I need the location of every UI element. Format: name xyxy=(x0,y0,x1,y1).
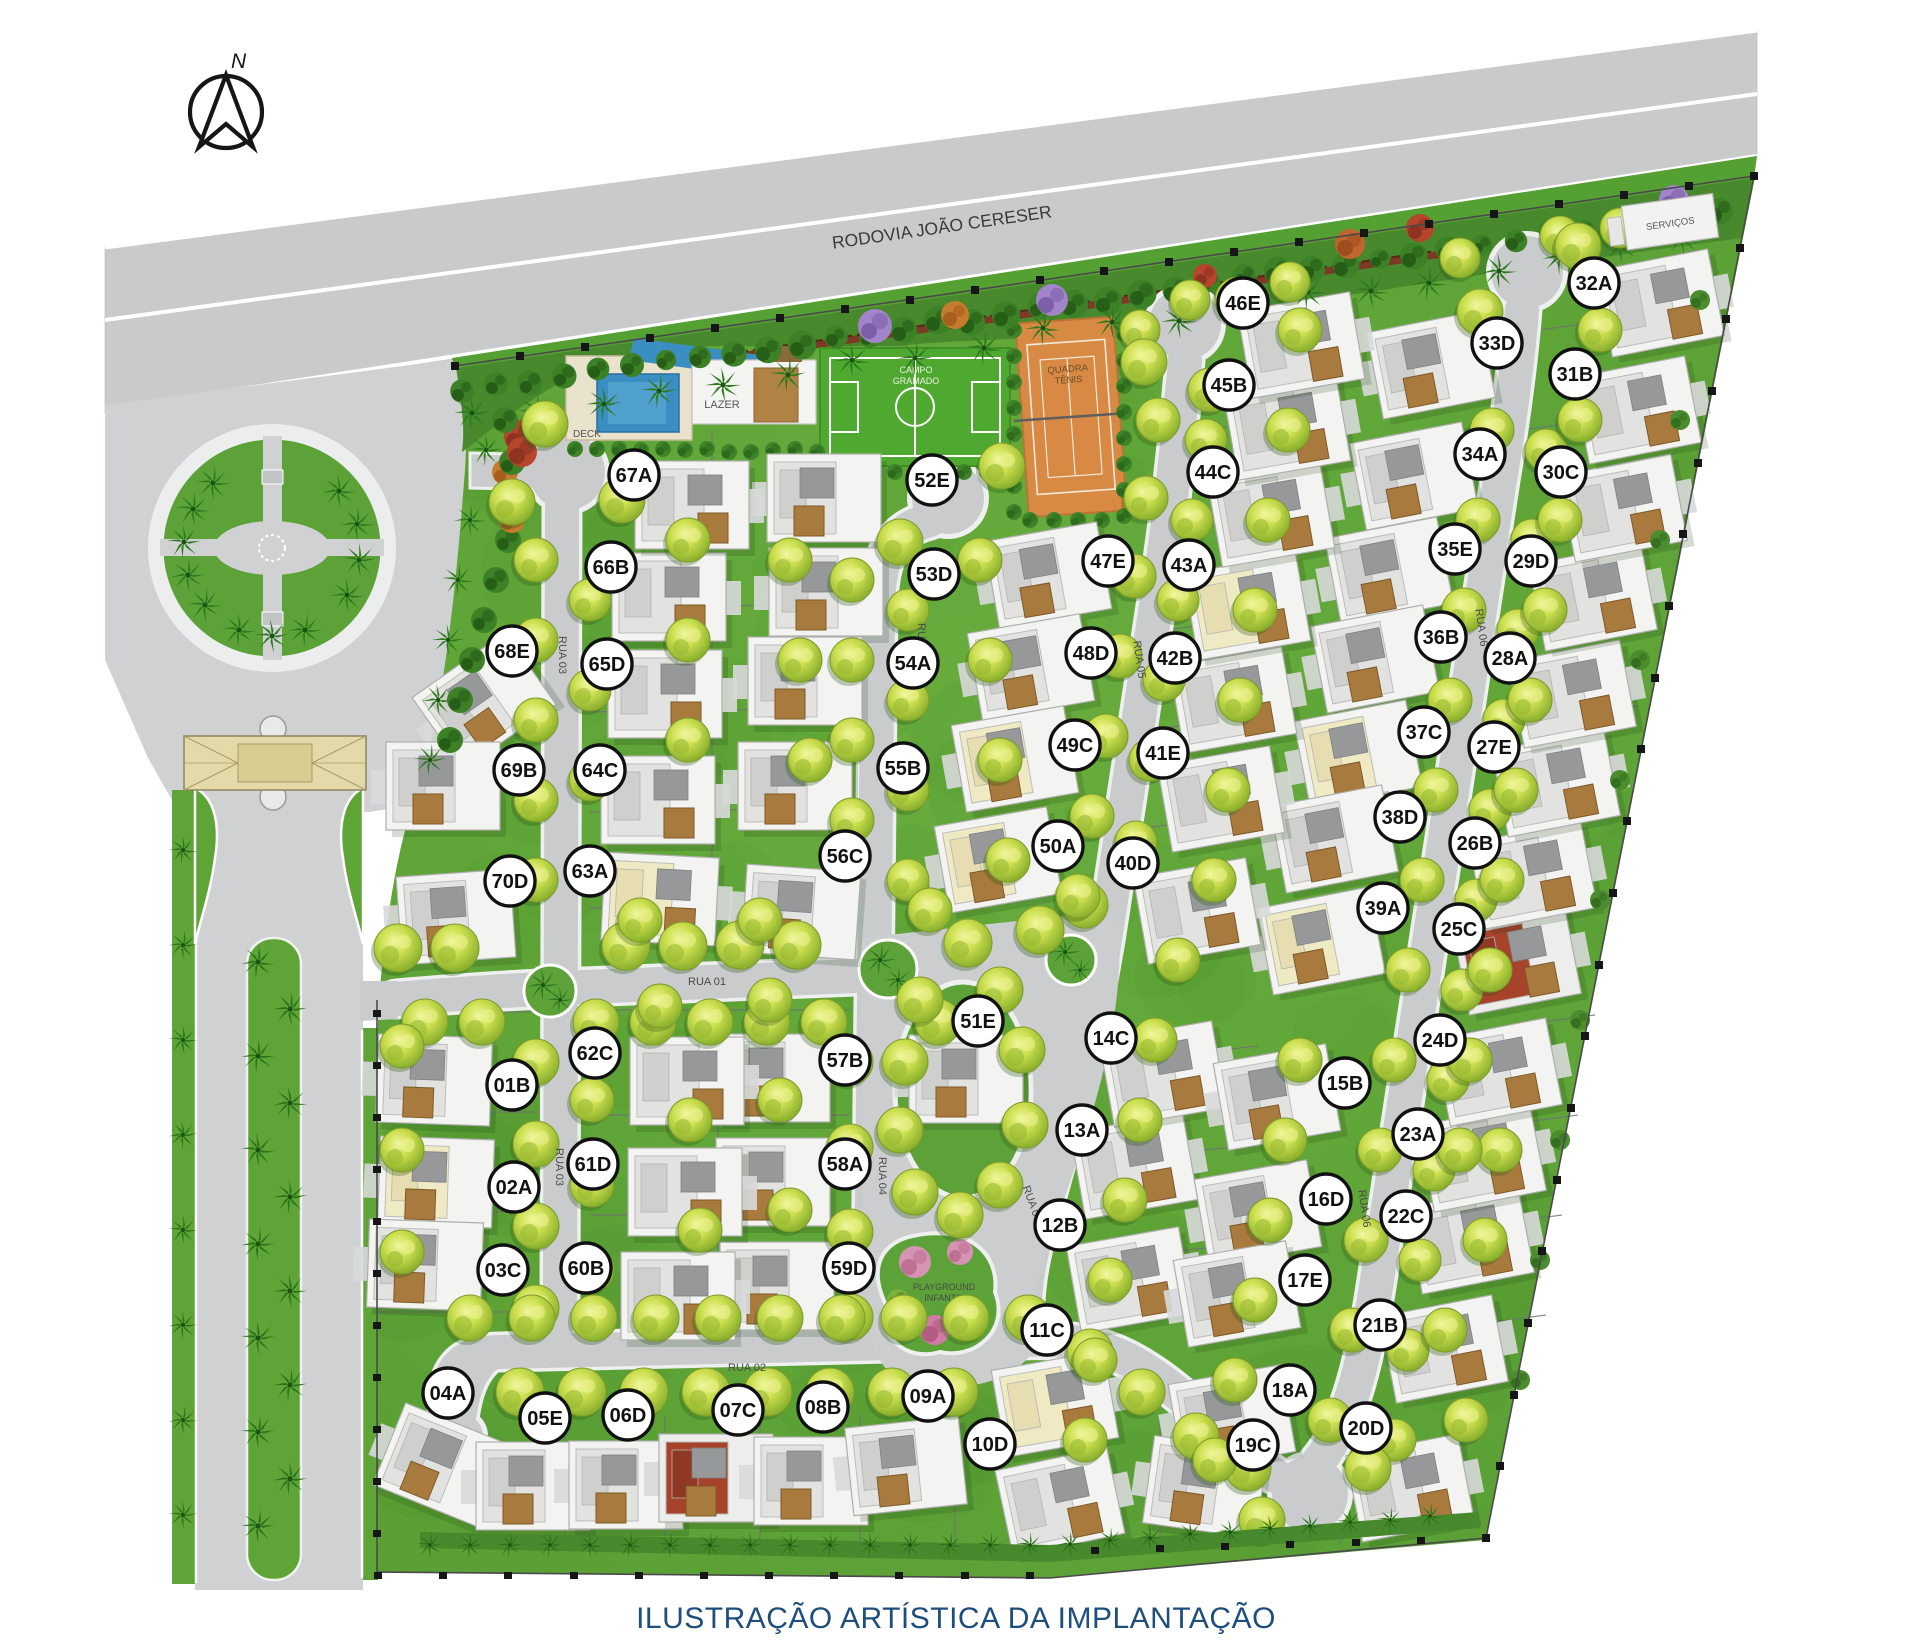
svg-text:38D: 38D xyxy=(1382,807,1419,829)
svg-text:61D: 61D xyxy=(575,1154,612,1176)
svg-text:06D: 06D xyxy=(610,1405,647,1427)
svg-text:45B: 45B xyxy=(1211,375,1248,397)
svg-text:53D: 53D xyxy=(916,564,953,586)
svg-text:24D: 24D xyxy=(1422,1030,1459,1052)
svg-text:37C: 37C xyxy=(1406,722,1443,744)
svg-text:14C: 14C xyxy=(1093,1028,1130,1050)
svg-text:02A: 02A xyxy=(496,1177,533,1199)
svg-text:43A: 43A xyxy=(1171,555,1208,577)
svg-text:LAZER: LAZER xyxy=(704,399,740,411)
svg-text:52E: 52E xyxy=(914,470,950,492)
svg-text:04A: 04A xyxy=(430,1383,467,1405)
svg-text:62C: 62C xyxy=(577,1043,614,1065)
svg-text:67A: 67A xyxy=(616,465,653,487)
svg-text:28A: 28A xyxy=(1492,648,1529,670)
svg-text:41E: 41E xyxy=(1145,743,1181,765)
svg-text:51E: 51E xyxy=(960,1011,996,1033)
svg-text:25C: 25C xyxy=(1441,919,1478,941)
svg-text:TÊNIS: TÊNIS xyxy=(1054,374,1083,387)
svg-text:29D: 29D xyxy=(1513,551,1550,573)
svg-text:30C: 30C xyxy=(1543,462,1580,484)
svg-text:RUA 01: RUA 01 xyxy=(688,976,726,988)
svg-text:ILUSTRAÇÃO ARTÍSTICA DA IMPLAN: ILUSTRAÇÃO ARTÍSTICA DA IMPLANTAÇÃO xyxy=(636,1601,1276,1635)
svg-text:13A: 13A xyxy=(1064,1120,1101,1142)
svg-text:70D: 70D xyxy=(492,871,529,893)
svg-text:RUA 04: RUA 04 xyxy=(876,1157,888,1195)
svg-text:09A: 09A xyxy=(910,1386,947,1408)
svg-text:49C: 49C xyxy=(1057,735,1094,757)
svg-text:PLAYGROUND: PLAYGROUND xyxy=(913,1282,976,1292)
svg-text:33D: 33D xyxy=(1479,333,1516,355)
svg-text:RUA 02: RUA 02 xyxy=(728,1362,766,1374)
svg-text:69B: 69B xyxy=(501,760,538,782)
svg-text:36B: 36B xyxy=(1423,627,1460,649)
svg-text:27E: 27E xyxy=(1476,737,1512,759)
svg-text:23A: 23A xyxy=(1400,1124,1437,1146)
svg-text:03C: 03C xyxy=(485,1260,522,1282)
svg-text:64C: 64C xyxy=(582,760,619,782)
svg-text:26B: 26B xyxy=(1457,833,1494,855)
svg-text:07C: 07C xyxy=(720,1400,757,1422)
svg-text:56C: 56C xyxy=(827,846,864,868)
svg-text:21B: 21B xyxy=(1362,1315,1399,1337)
svg-text:GRAMADO: GRAMADO xyxy=(893,376,940,386)
svg-text:31B: 31B xyxy=(1557,364,1594,386)
svg-text:39A: 39A xyxy=(1365,898,1402,920)
svg-text:10D: 10D xyxy=(972,1434,1009,1456)
svg-text:12B: 12B xyxy=(1042,1215,1079,1237)
svg-text:40D: 40D xyxy=(1115,853,1152,875)
svg-text:01B: 01B xyxy=(494,1075,531,1097)
svg-text:18A: 18A xyxy=(1272,1380,1309,1402)
svg-text:17E: 17E xyxy=(1287,1270,1323,1292)
svg-text:42B: 42B xyxy=(1157,648,1194,670)
svg-text:05E: 05E xyxy=(527,1408,563,1430)
svg-text:57B: 57B xyxy=(827,1050,864,1072)
svg-text:66B: 66B xyxy=(593,557,630,579)
svg-text:11C: 11C xyxy=(1029,1320,1065,1342)
svg-text:46E: 46E xyxy=(1225,293,1261,315)
svg-text:19C: 19C xyxy=(1235,1435,1272,1457)
svg-text:60B: 60B xyxy=(568,1258,605,1280)
svg-text:15B: 15B xyxy=(1327,1073,1364,1095)
svg-text:32A: 32A xyxy=(1576,273,1613,295)
svg-text:N: N xyxy=(231,50,247,73)
svg-text:58A: 58A xyxy=(827,1154,864,1176)
svg-text:RUA 03: RUA 03 xyxy=(553,1148,565,1186)
svg-text:35E: 35E xyxy=(1437,539,1473,561)
svg-text:08B: 08B xyxy=(805,1397,842,1419)
svg-text:22C: 22C xyxy=(1388,1206,1425,1228)
svg-text:55B: 55B xyxy=(885,758,922,780)
svg-text:54A: 54A xyxy=(895,653,932,675)
svg-text:59D: 59D xyxy=(831,1258,868,1280)
svg-text:16D: 16D xyxy=(1308,1189,1345,1211)
svg-text:20D: 20D xyxy=(1348,1418,1385,1440)
svg-text:48D: 48D xyxy=(1073,643,1110,665)
svg-text:50A: 50A xyxy=(1040,836,1077,858)
svg-text:RUA 03: RUA 03 xyxy=(556,636,568,674)
svg-text:34A: 34A xyxy=(1462,444,1499,466)
svg-text:DECK: DECK xyxy=(573,429,601,440)
svg-text:68E: 68E xyxy=(494,641,530,663)
svg-text:47E: 47E xyxy=(1090,551,1126,573)
svg-text:63A: 63A xyxy=(572,861,609,883)
svg-text:65D: 65D xyxy=(589,654,626,676)
svg-text:44C: 44C xyxy=(1195,462,1232,484)
